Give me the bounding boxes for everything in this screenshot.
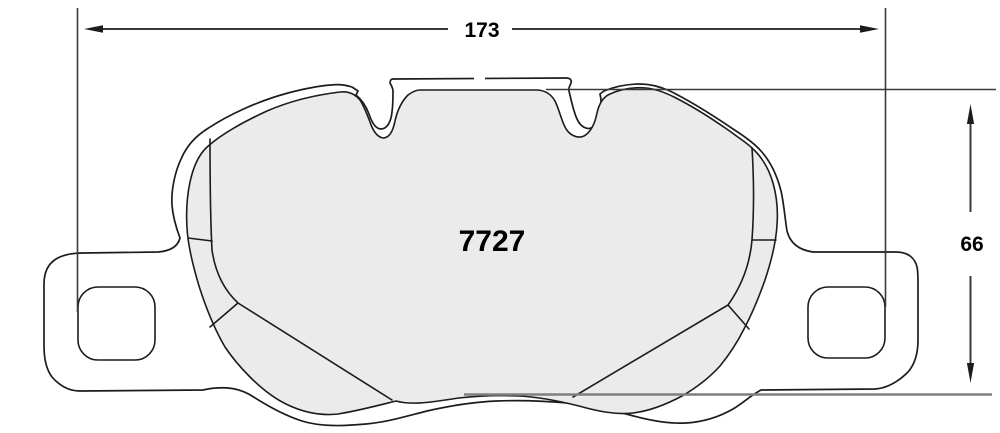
- mounting-hole-right: [808, 287, 885, 358]
- brake-pad-drawing-canvas: 173 66 7727: [0, 0, 1000, 433]
- tab-top-line-gap: [474, 73, 485, 82]
- height-dimension-label: 66: [960, 233, 983, 256]
- width-dimension-arrow-right: [860, 25, 879, 32]
- mounting-hole-left: [78, 287, 155, 360]
- height-dimension-arrow-down: [967, 363, 974, 383]
- width-dimension-label: 173: [464, 19, 499, 42]
- brake-pad-technical-drawing: 173 66 7727: [0, 0, 1000, 433]
- height-dimension-arrow-up: [967, 104, 974, 124]
- part-number-label: 7727: [459, 225, 526, 258]
- width-dimension-arrow-left: [84, 25, 103, 32]
